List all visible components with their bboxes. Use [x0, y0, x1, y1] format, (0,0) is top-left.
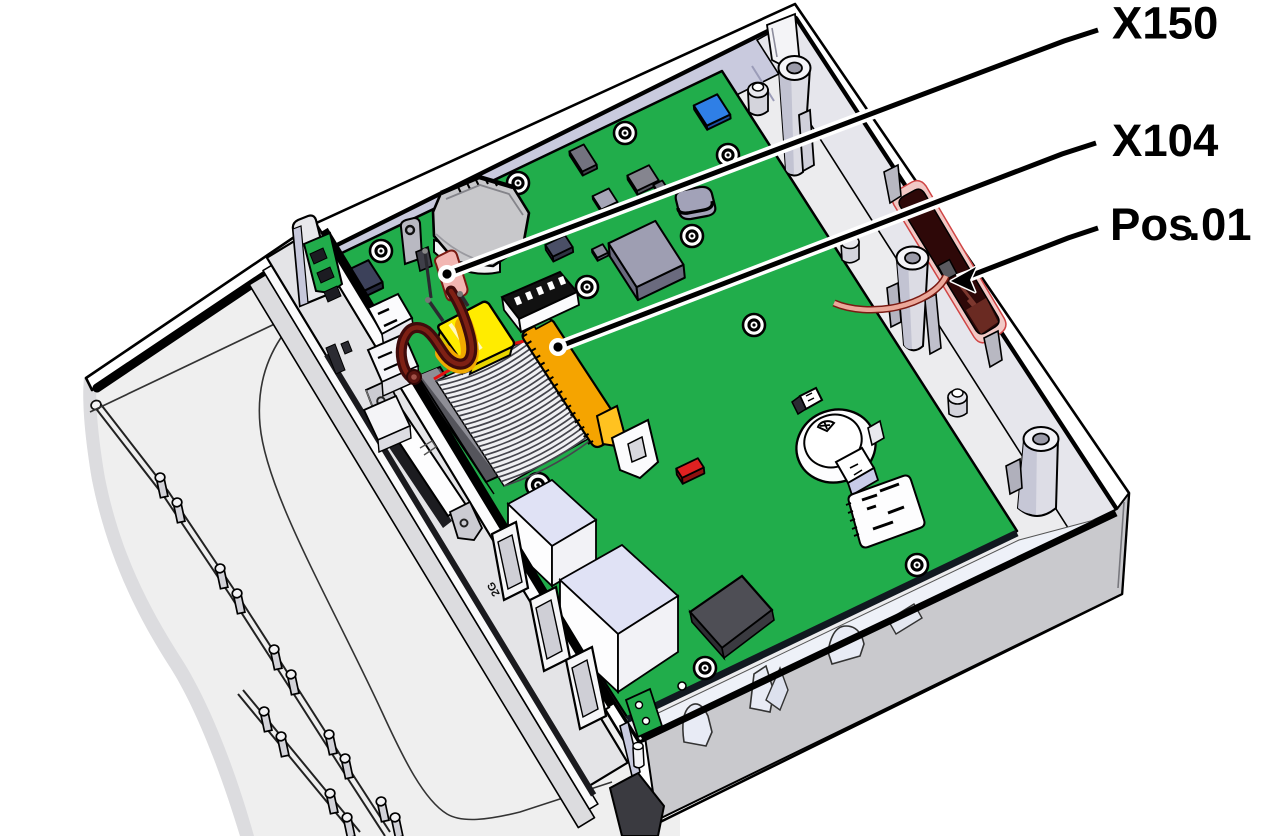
svg-text:X104: X104: [1112, 115, 1219, 166]
svg-text:.: .: [1188, 199, 1201, 250]
svg-text:Pos: Pos: [1110, 199, 1193, 250]
svg-text:01: 01: [1201, 199, 1252, 250]
svg-text:X150: X150: [1112, 0, 1218, 49]
